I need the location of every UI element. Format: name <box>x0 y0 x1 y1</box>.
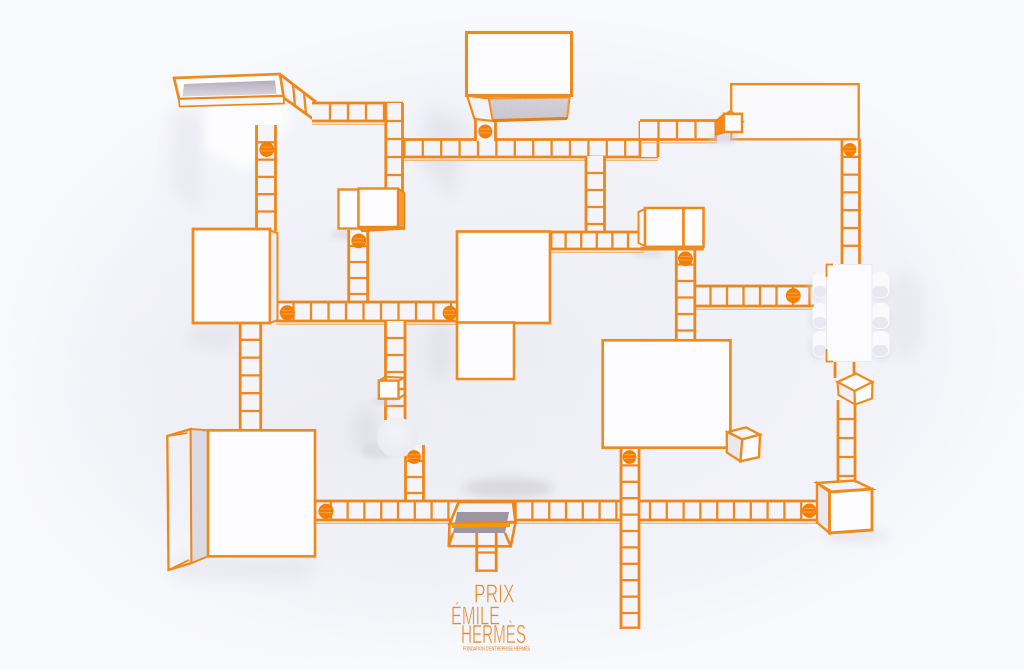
svg-text:FONDATION D'ENTREPRISE HERMÈS: FONDATION D'ENTREPRISE HERMÈS <box>463 646 530 653</box>
svg-text:HERMÈS: HERMÈS <box>461 619 526 649</box>
